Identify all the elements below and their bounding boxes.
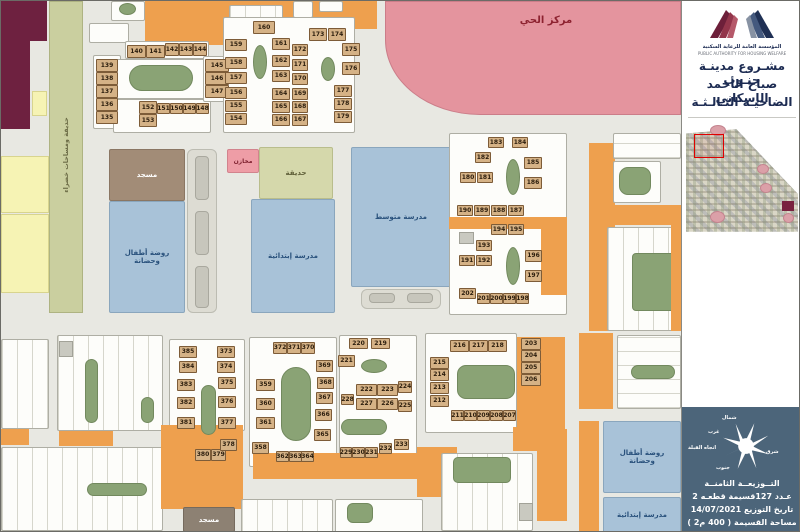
park-green [129, 65, 193, 91]
commercial-zone [1, 429, 29, 445]
utility-box [519, 503, 533, 521]
plot-226: 226 [377, 398, 398, 410]
plot-214: 214 [430, 369, 449, 381]
block [241, 499, 333, 532]
compass-label-west: غرب [708, 429, 720, 435]
elementary-school-label: مدرسة إبتدائية [268, 252, 318, 260]
plot-198: 198 [516, 293, 529, 304]
plot-171: 171 [292, 59, 308, 71]
walkway-detail [195, 266, 209, 308]
org-name-english: PUBLIC AUTHORITY FOR HOUSING WELFARE [682, 51, 800, 56]
plot-156: 156 [225, 87, 247, 99]
plot-211: 211 [451, 410, 464, 421]
neighborhood-center-label: مركز الحي [501, 15, 591, 28]
plot-149: 149 [183, 103, 196, 114]
plot-215: 215 [430, 357, 449, 369]
plot-360: 360 [256, 398, 275, 410]
plot-371: 371 [287, 342, 301, 354]
plot-187: 187 [508, 205, 524, 216]
plot-229: 229 [340, 447, 352, 458]
park-green [347, 503, 373, 523]
walkway-detail [195, 156, 209, 200]
plot-137: 137 [96, 85, 118, 98]
plot-139: 139 [96, 59, 118, 72]
info-panel: شمال غرب اتجاه القبلة شرق جنوب التــوزيع… [682, 407, 800, 532]
plot-167: 167 [292, 114, 308, 126]
plot-141: 141 [146, 45, 165, 58]
plot-180: 180 [460, 172, 476, 183]
plot-383: 383 [177, 379, 195, 391]
plot-135: 135 [96, 111, 118, 124]
plot-158: 158 [225, 57, 247, 69]
overview-map [686, 127, 798, 235]
middle-school-label: مدرسة متوسط [375, 213, 427, 221]
commercial-zone [537, 429, 567, 521]
existing-building [32, 91, 47, 116]
compass-label-qibla: اتجاه القبلة [688, 445, 716, 451]
plot-153: 153 [139, 114, 157, 127]
plot-184: 184 [512, 137, 528, 148]
plot-202: 202 [459, 288, 476, 299]
park-oval [631, 365, 675, 379]
park-green [632, 253, 676, 311]
compass-label-north: شمال [722, 415, 737, 421]
block [319, 1, 343, 12]
plot-176: 176 [342, 62, 360, 75]
park-oval [119, 3, 136, 15]
park-green [281, 367, 311, 441]
compass-label-south: جنوب [716, 465, 730, 471]
plot-204: 204 [521, 350, 541, 362]
park-oval [506, 159, 520, 195]
plot-157: 157 [225, 72, 247, 84]
plot-218: 218 [488, 340, 507, 352]
plot-365: 365 [314, 429, 331, 441]
overview-roundabout [710, 211, 725, 223]
existing-building [1, 41, 30, 129]
plot-182: 182 [475, 152, 491, 163]
plot-177: 177 [334, 85, 352, 97]
plot-367: 367 [316, 392, 333, 404]
plot-152: 152 [139, 101, 157, 114]
plot-228: 228 [341, 394, 354, 405]
plot-181: 181 [477, 172, 493, 183]
compass-label-east: شرق [766, 449, 779, 455]
info-line-area: مساحة القسيمة ( 400 م2 ) [682, 518, 800, 527]
plot-197: 197 [525, 270, 542, 282]
org-name-arabic: المؤسسة العامة للرعاية السكنية [682, 44, 800, 50]
plot-148: 148 [196, 103, 209, 114]
park-oval [341, 419, 387, 435]
commercial-zone [59, 431, 113, 446]
plot-201: 201 [477, 293, 490, 304]
mosque-label: مسجد [137, 171, 158, 179]
plot-378: 378 [220, 439, 237, 451]
overview-roundabout [757, 164, 769, 174]
plot-374: 374 [217, 361, 235, 373]
plot-163: 163 [272, 70, 290, 82]
commercial-zone [541, 229, 567, 295]
mosque-south-label: مسجد [199, 516, 220, 524]
plot-373: 373 [217, 346, 235, 358]
plot-225: 225 [398, 400, 412, 412]
plot-143: 143 [179, 43, 193, 56]
info-line-distribution: التــوزيعــة الثامنــة [682, 479, 800, 488]
park-oval [506, 247, 520, 285]
commercial-zone [671, 209, 681, 331]
plot-191: 191 [459, 255, 475, 266]
utility-box [459, 232, 474, 244]
plot-144: 144 [193, 43, 207, 56]
plot-151: 151 [157, 103, 170, 114]
existing-building [1, 156, 49, 213]
plot-217: 217 [469, 340, 488, 352]
plot-189: 189 [474, 205, 490, 216]
plot-381: 381 [177, 417, 195, 429]
plot-154: 154 [225, 113, 247, 125]
plot-203: 203 [521, 338, 541, 350]
plot-175: 175 [342, 43, 360, 56]
plot-159: 159 [225, 39, 247, 51]
utility-box [59, 341, 73, 357]
existing-building [1, 1, 47, 41]
plot-193: 193 [476, 240, 492, 251]
plot-369: 369 [316, 360, 333, 372]
overview-highlight-rect [694, 134, 724, 158]
playground-detail [369, 293, 395, 303]
mosque-building-south: مسجد [183, 507, 235, 532]
plot-185: 185 [524, 157, 542, 169]
block [89, 23, 129, 43]
plot-140: 140 [127, 45, 146, 58]
park-oval [361, 359, 387, 373]
plot-368: 368 [317, 377, 334, 389]
plot-160: 160 [253, 21, 275, 34]
plot-172: 172 [292, 44, 308, 56]
plot-385: 385 [179, 346, 197, 358]
plot-223: 223 [377, 384, 398, 396]
plot-362: 362 [276, 451, 289, 462]
plot-200: 200 [490, 293, 503, 304]
plot-174: 174 [328, 28, 346, 41]
park-green [457, 365, 515, 399]
stores-label: مخازن [234, 158, 253, 165]
plot-219: 219 [371, 338, 390, 349]
divider [688, 117, 796, 118]
park-oval [87, 483, 147, 496]
plot-376: 376 [218, 396, 236, 408]
plot-231: 231 [365, 447, 378, 458]
plot-361: 361 [256, 417, 275, 429]
info-line-plot-count: عـدد 127قسيمة قطعـه 2 [682, 492, 800, 501]
plot-207: 207 [503, 410, 516, 421]
plot-221: 221 [338, 355, 355, 367]
plot-195: 195 [508, 224, 524, 235]
plot-232: 232 [379, 443, 392, 454]
plot-150: 150 [170, 103, 183, 114]
park-green [453, 457, 511, 483]
plot-205: 205 [521, 362, 541, 374]
plot-178: 178 [334, 98, 352, 110]
plot-210: 210 [464, 410, 477, 421]
project-title-line3: الضاحيـة الثـالـثـة [682, 95, 800, 109]
plot-165: 165 [272, 101, 290, 113]
plot-233: 233 [394, 439, 409, 450]
plot-212: 212 [430, 395, 449, 407]
page: حديقة ومساحات خضراء مركز الحي مسجد روضة … [0, 0, 800, 532]
overview-roundabout [783, 213, 794, 223]
plot-162: 162 [272, 55, 290, 67]
mosque-building: مسجد [109, 149, 185, 201]
plot-227: 227 [356, 398, 377, 410]
park-label: حديقة [286, 169, 307, 177]
existing-building [1, 214, 49, 293]
plot-230: 230 [352, 447, 365, 458]
plot-358: 358 [252, 442, 269, 454]
commercial-zone [579, 421, 599, 532]
commercial-zone [579, 333, 613, 409]
elementary-school-building-south: مدرسة إبتدائية [603, 497, 681, 532]
plot-166: 166 [272, 114, 290, 126]
plot-209: 209 [477, 410, 490, 421]
info-line-date: تاريخ التوزيع 14/07/2021 [682, 505, 800, 514]
overview-landmark [782, 201, 794, 211]
playground-detail [407, 293, 433, 303]
plot-377: 377 [218, 417, 236, 429]
stores-building: مخازن [227, 149, 259, 173]
plot-183: 183 [488, 137, 504, 148]
block [293, 1, 313, 18]
commercial-zone [145, 1, 227, 45]
plot-375: 375 [218, 377, 236, 389]
middle-school-building: مدرسة متوسط [351, 147, 451, 287]
elementary-school-building: مدرسة إبتدائية [251, 199, 335, 313]
plot-199: 199 [503, 293, 516, 304]
plot-220: 220 [349, 338, 368, 349]
plot-196: 196 [525, 250, 542, 262]
plot-173: 173 [309, 28, 327, 41]
plot-213: 213 [430, 382, 449, 394]
plot-155: 155 [225, 100, 247, 112]
plot-142: 142 [165, 43, 179, 56]
park-oval [321, 57, 335, 81]
plot-370: 370 [301, 342, 315, 354]
plot-170: 170 [292, 73, 308, 85]
kindergarten-south-label: روضة أطفال وحضانة [612, 449, 672, 465]
plot-384: 384 [179, 361, 197, 373]
plot-164: 164 [272, 88, 290, 100]
sidebar: المؤسسة العامة للرعاية السكنية PUBLIC AU… [681, 1, 800, 532]
kindergarten-building-south: روضة أطفال وحضانة [603, 421, 681, 493]
plot-138: 138 [96, 72, 118, 85]
plot-216: 216 [450, 340, 469, 352]
plot-382: 382 [177, 397, 195, 409]
plot-366: 366 [315, 409, 332, 421]
plot-188: 188 [491, 205, 507, 216]
plot-179: 179 [334, 111, 352, 123]
plot-359: 359 [256, 379, 275, 391]
plot-192: 192 [476, 255, 492, 266]
plot-206: 206 [521, 374, 541, 386]
authority-logo [702, 4, 782, 42]
plot-194: 194 [491, 224, 507, 235]
site-plan-map: حديقة ومساحات خضراء مركز الحي مسجد روضة … [1, 1, 681, 532]
plot-186: 186 [524, 177, 542, 189]
block [1, 339, 49, 429]
plot-169: 169 [292, 88, 308, 100]
park-oval [201, 385, 216, 435]
plot-190: 190 [457, 205, 473, 216]
park-oval [141, 397, 154, 423]
plot-136: 136 [96, 98, 118, 111]
overview-roundabout [760, 183, 772, 193]
plot-380: 380 [195, 449, 211, 461]
green-spaces-label: حديقة ومساحات خضراء [62, 75, 70, 235]
block [613, 133, 681, 159]
park-oval [85, 359, 98, 423]
walkway-detail [195, 211, 209, 255]
plot-364: 364 [301, 451, 314, 462]
kindergarten-building: روضة أطفال وحضانة [109, 201, 185, 313]
plot-222: 222 [356, 384, 377, 396]
plot-168: 168 [292, 101, 308, 113]
park-green [619, 167, 651, 195]
park-oval [253, 45, 267, 79]
plot-224: 224 [398, 381, 412, 393]
kindergarten-label: روضة أطفال وحضانة [120, 249, 175, 265]
elementary-school-south-label: مدرسة إبتدائية [617, 511, 667, 519]
commercial-zone [513, 427, 539, 451]
plot-208: 208 [490, 410, 503, 421]
plot-161: 161 [272, 38, 290, 50]
commercial-zone [161, 425, 243, 509]
park-area: حديقة [259, 147, 333, 199]
plot-372: 372 [273, 342, 287, 354]
